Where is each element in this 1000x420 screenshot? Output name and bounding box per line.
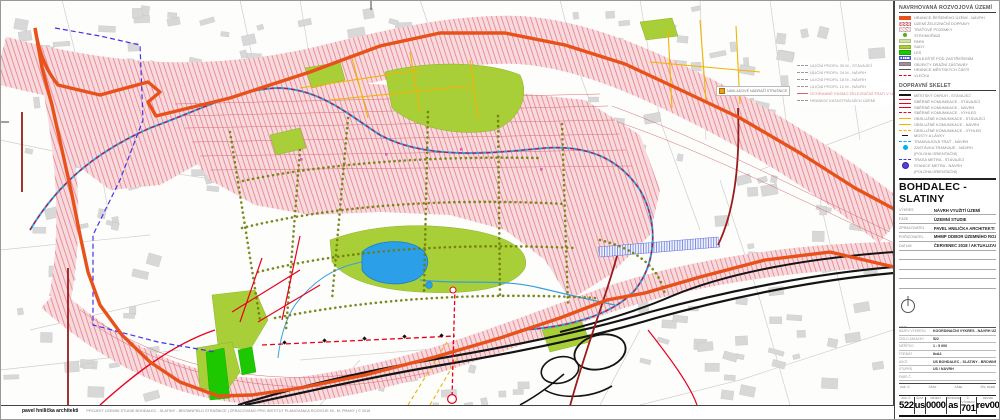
street-legend-row: ULIČNÍ PROFIL 24 M - NÁVRH [797,69,893,76]
ring-road-line-icon [899,94,911,96]
info-row: ČÍSLO ZAKÁZKY522 [899,336,996,344]
columns-header: ZAK. Č. ČÁST FÁZE ČÍS. PARÉ [899,383,996,395]
collector-proposed-line-icon [899,107,911,108]
drawing-number-segment: Č. VÝKRESU701 [960,397,976,414]
title-block-empty-row [899,270,996,280]
street-legend-row: ULIČNÍ PROFIL 30 M - STÁVAJÍCÍ [797,62,893,69]
street-legend-row: HRANICE KATASTRÁLNÍCH ÚZEMÍ [797,97,893,104]
legend-item-subline: (POLOHA ORIENTAČNÍ) [899,169,996,175]
title-block-row: FÁZEÚZEMNÍ STUDIE [899,215,996,224]
forest-swatch-icon [899,50,911,54]
drawing-number-strip: ZAK. Č.522 ČÁSTus OBJEKT0000 PROFESEas Č… [899,395,996,417]
district-border-line-icon [899,69,911,70]
title-block-empty-row [899,260,996,270]
title-block-row: ZPRACOVATELPAVEL HNILIČKA ARCHITEKTI [899,224,996,233]
rail-buildings-swatch-icon [899,62,911,66]
covered-rail-swatch-icon [899,56,911,60]
service-outlook-line-icon [899,130,911,131]
park-swatch-icon [899,39,911,43]
collector-outlook-line-icon [899,112,911,113]
drawing-number-segment: OBJEKT0000 [925,397,946,414]
legend-item: VLEČKA [899,73,996,79]
north-arrow-icon [899,295,917,315]
info-row: FORMÁT8xA4 [899,351,996,359]
info-row: STUPEŇUS / NÁVRH [899,366,996,374]
tram-line-icon [899,141,911,142]
line-sample-icon [797,79,808,80]
drawing-number-segment: PROFESEas [946,397,960,414]
legend-item: STANICE METRA - NÁVRH [899,162,996,169]
map-canvas: ULIČNÍ PROFIL 30 M - STÁVAJÍCÍ ULIČNÍ PR… [0,0,894,406]
studio-name: pavel hnilička architekti [22,408,78,414]
info-row: AKCEÚS BOHDALEC - SLATINY - BROWNFIELD S… [899,358,996,366]
north-arrow: sever [899,295,996,325]
line-sample-icon [797,65,808,66]
orchard-swatch-icon [899,45,911,49]
metro-line-icon [899,159,911,160]
rail-hatch-swatch-icon [899,22,911,26]
map-callout-label: NÁKLADOVÉ NÁDRAŽÍ STRAŠNICE [716,86,790,96]
line-sample-icon [797,72,808,73]
line-sample-icon [797,100,808,101]
legend-section-title: NAVRHOVANÁ ROZVOJOVÁ ÚZEMÍ [899,5,996,13]
street-legend-row: ULIČNÍ PROFIL 18 M - NÁVRH [797,76,893,83]
street-profile-legend: ULIČNÍ PROFIL 30 M - STÁVAJÍCÍ ULIČNÍ PR… [795,61,894,105]
project-title: BOHDALEC - SLATINY [899,181,996,205]
drawing-number-segment: ZAK. Č.522 [899,397,914,414]
track-hatch-swatch-icon [899,27,911,31]
collector-existing-line-icon [899,99,911,104]
service-proposed-line-icon [899,124,911,125]
tram-stop-icon [899,145,911,150]
street-legend-row: OCHRANNÉ PÁSMO ŽELEZNIČNÍ TRATI V ÚZEMÍ [797,90,893,97]
sheet-footer: pavel hnilička architekti PROJEKT ÚZEMNÍ… [22,408,882,414]
footer-note: PROJEKT ÚZEMNÍ STUDIE BOHDALEC - SLATINY… [86,409,370,413]
marker-square-icon [719,88,725,94]
boundary-swatch-icon [899,16,911,19]
title-block-row: VÝKRESNÁVRH VYUŽITÍ ÚZEMÍ [899,207,996,216]
legend-panel: NAVRHOVANÁ ROZVOJOVÁ ÚZEMÍ HRANICE ŘEŠEN… [894,0,1000,420]
drawing-number-segment: ČÁSTus [914,397,925,414]
bridge-line-icon [902,135,908,136]
title-block-empty-row [899,279,996,289]
line-sample-icon [797,93,808,94]
map-drawing [0,0,894,406]
service-existing-line-icon [899,118,911,119]
siding-line-icon [899,75,911,76]
drawing-number-segment: REVIZErev00 [976,397,1000,414]
legend-section-title: DOPRAVNÍ SKELET [899,83,996,91]
info-table: NÁZEV VÝKRESUKOORDINAČNÍ VÝKRES - NÁVRH … [899,327,996,381]
title-block-row: POŘIZOVATELMHMP ODBOR ÚZEMNÍHO ROZVOJE [899,233,996,242]
line-sample-icon [797,86,808,87]
tree-dot-icon [899,33,911,37]
info-row: NÁZEV VÝKRESUKOORDINAČNÍ VÝKRES - NÁVRH … [899,328,996,336]
street-legend-row: ULIČNÍ PROFIL 12 M - NÁVRH [797,83,893,90]
title-block-empty-row [899,251,996,261]
title-block: BOHDALEC - SLATINY VÝKRESNÁVRH VYUŽITÍ Ú… [899,178,996,289]
info-row: MĚŘÍTKO1 : 5 000 [899,343,996,351]
info-row: PARÉ Č. [899,373,996,381]
title-block-row: DATUMČERVENEC 2018 / AKTUALIZACE [899,242,996,251]
pond [362,242,428,284]
